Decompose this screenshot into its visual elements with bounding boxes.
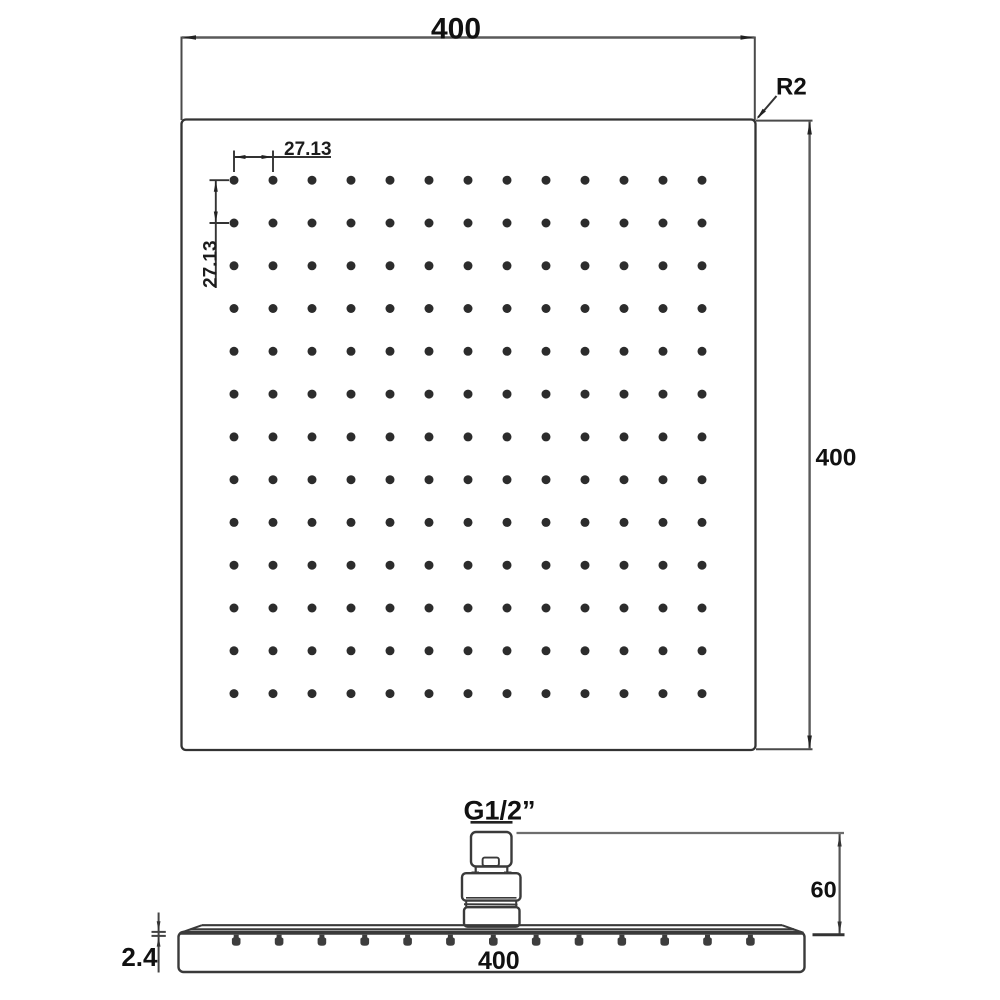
svg-text:27.13: 27.13 xyxy=(201,240,222,288)
svg-text:60: 60 xyxy=(811,877,837,903)
svg-text:400: 400 xyxy=(478,947,520,975)
svg-text:400: 400 xyxy=(816,444,857,471)
svg-text:R2: R2 xyxy=(776,74,807,101)
svg-text:27.13: 27.13 xyxy=(284,139,332,160)
svg-text:2.4: 2.4 xyxy=(121,942,158,972)
svg-text:400: 400 xyxy=(431,13,481,46)
